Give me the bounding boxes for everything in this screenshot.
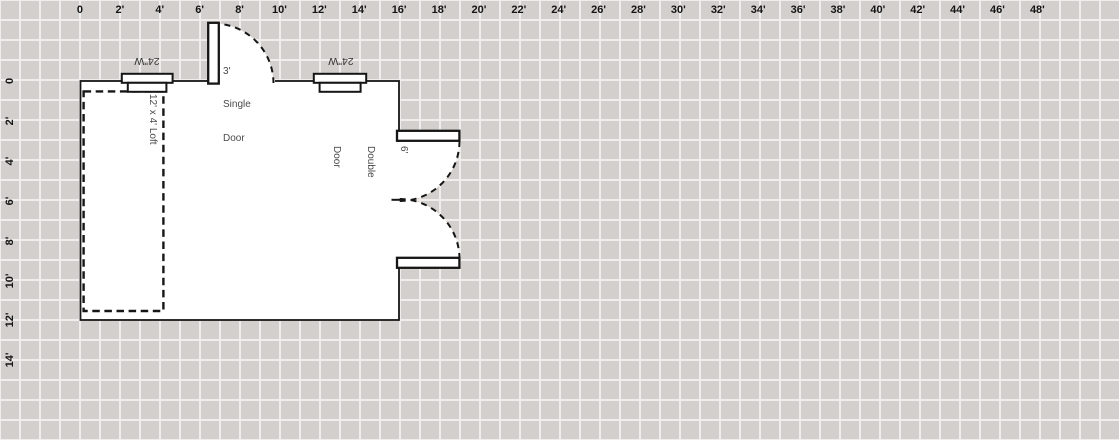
loft-label: 12' x 4' Loft bbox=[147, 94, 158, 145]
window-right[interactable] bbox=[314, 74, 366, 92]
window-left-label: 24"W bbox=[134, 55, 159, 67]
plan-drawing bbox=[0, 0, 1119, 440]
double-door-label-line2: Double bbox=[364, 146, 375, 178]
single-door-label-line3: Door bbox=[223, 133, 251, 144]
double-door-label: 6' Double Door bbox=[308, 146, 432, 178]
window-right-label: 24"W bbox=[328, 55, 353, 67]
double-door-leaf-top[interactable] bbox=[397, 131, 459, 141]
window-left-outer-frame bbox=[122, 74, 173, 83]
double-door-leaf-bottom[interactable] bbox=[397, 258, 459, 268]
window-left[interactable] bbox=[122, 74, 173, 92]
single-door-label: 3' Single Door bbox=[223, 43, 251, 167]
window-left-inner-frame bbox=[128, 83, 167, 92]
single-door-label-size: 3' bbox=[223, 66, 251, 77]
window-right-inner-frame bbox=[320, 83, 361, 92]
floorplan-canvas[interactable]: 02'4'6'8'10'12'14'16'18'20'22'24'26'28'3… bbox=[0, 0, 1119, 440]
double-door-label-size: 6' bbox=[398, 146, 409, 178]
window-right-outer-frame bbox=[314, 74, 366, 83]
double-door-swing-area-bottom bbox=[400, 199, 460, 259]
single-door-leaf[interactable] bbox=[208, 23, 219, 84]
double-door-label-line3: Door bbox=[330, 146, 341, 178]
single-door-label-line2: Single bbox=[223, 99, 251, 110]
